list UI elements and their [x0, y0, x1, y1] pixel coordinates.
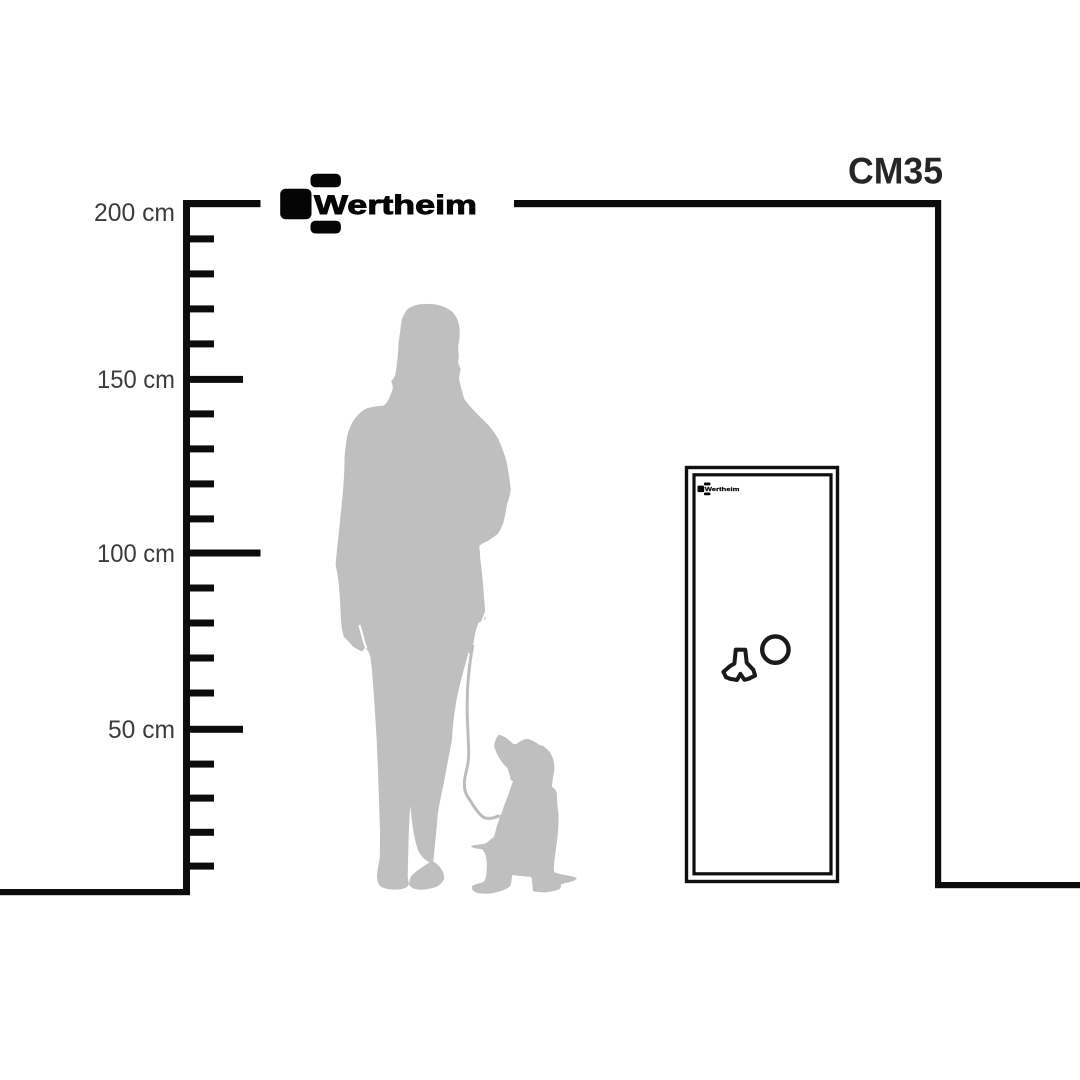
- svg-text:200 cm: 200 cm: [94, 200, 175, 227]
- svg-text:CM35: CM35: [848, 151, 943, 192]
- svg-text:Wertheim: Wertheim: [705, 487, 740, 493]
- svg-text:Wertheim: Wertheim: [314, 190, 477, 220]
- svg-text:100 cm: 100 cm: [97, 541, 175, 568]
- svg-text:150 cm: 150 cm: [97, 367, 175, 394]
- svg-text:50 cm: 50 cm: [108, 717, 175, 744]
